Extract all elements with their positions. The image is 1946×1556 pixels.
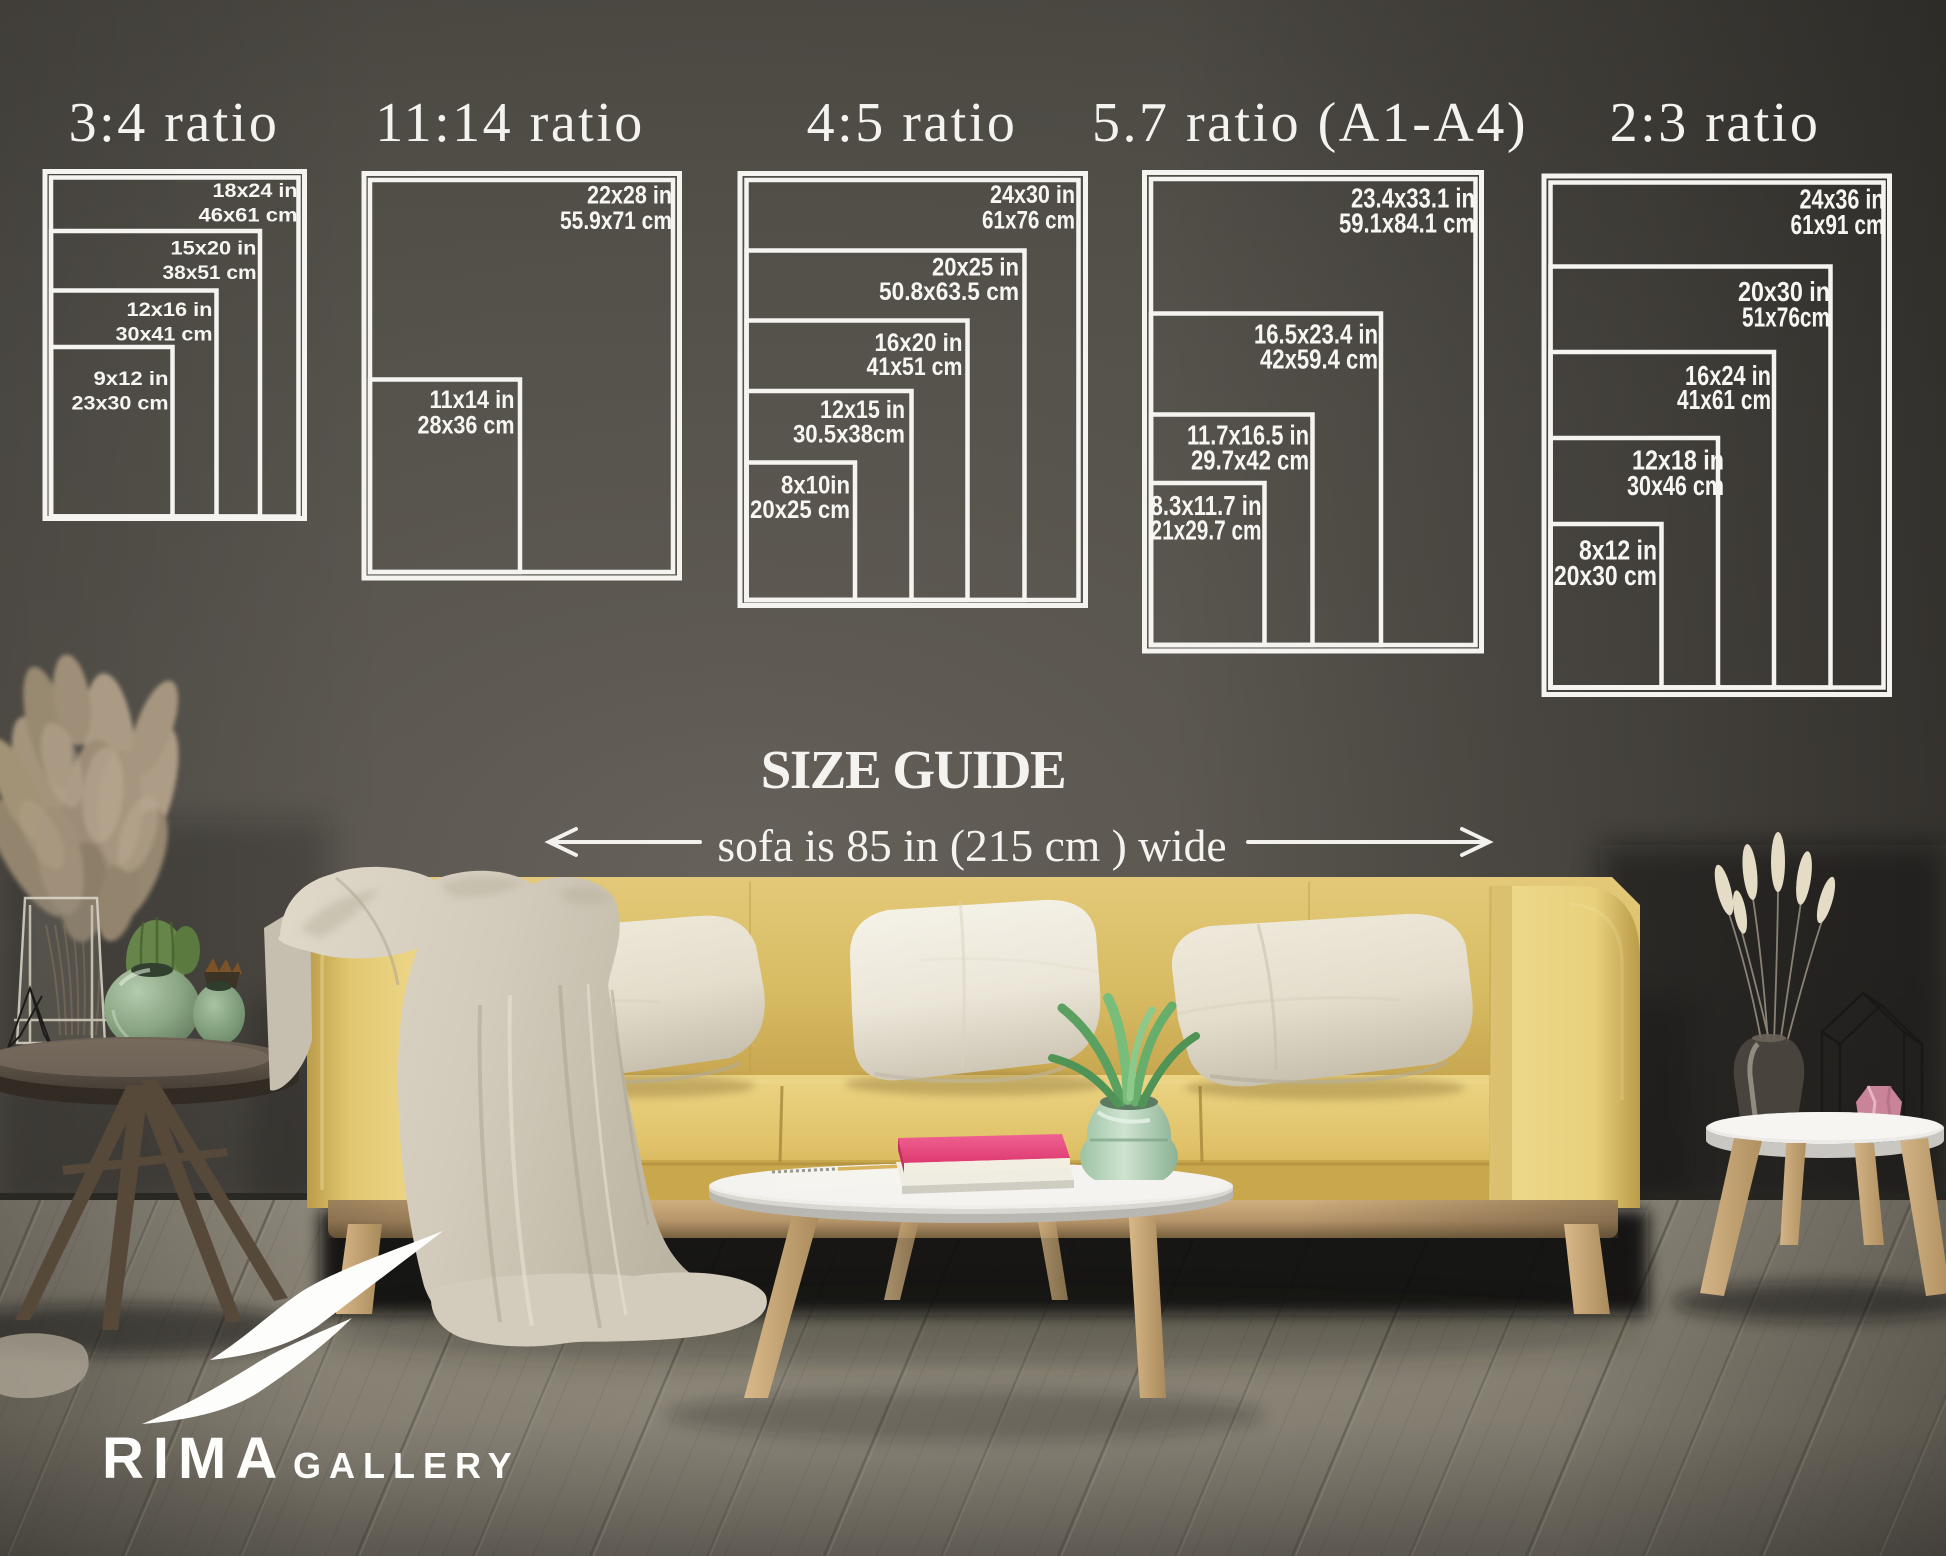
svg-text:5.7 ratio (A1-A4): 5.7 ratio (A1-A4) [1092,92,1528,154]
svg-text:SIZE GUIDE: SIZE GUIDE [761,739,1065,800]
svg-text:11x14 in28x36 cm: 11x14 in28x36 cm [418,386,515,440]
svg-text:24x30 in61x76 cm: 24x30 in61x76 cm [982,181,1075,235]
svg-text:24x36 in61x91 cm: 24x36 in61x91 cm [1791,184,1885,241]
svg-text:16x20 in41x51 cm: 16x20 in41x51 cm [867,329,963,381]
svg-text:2:3 ratio: 2:3 ratio [1610,92,1821,154]
svg-text:GALLERY: GALLERY [293,1445,520,1486]
svg-text:sofa is 85 in (215 cm ) wide: sofa is 85 in (215 cm ) wide [717,820,1226,871]
svg-text:4:5 ratio: 4:5 ratio [807,92,1018,154]
svg-text:8.3x11.7 in21x29.7 cm: 8.3x11.7 in21x29.7 cm [1151,490,1262,546]
svg-text:20x30 in51x76cm: 20x30 in51x76cm [1738,276,1830,333]
svg-text:11.7x16.5 in29.7x42 cm: 11.7x16.5 in29.7x42 cm [1187,420,1309,476]
svg-text:11:14 ratio: 11:14 ratio [375,92,645,154]
svg-text:23.4x33.1 in59.1x84.1 cm: 23.4x33.1 in59.1x84.1 cm [1339,183,1475,239]
svg-text:16.5x23.4 in42x59.4 cm: 16.5x23.4 in42x59.4 cm [1254,319,1378,375]
svg-text:16x24 in41x61 cm: 16x24 in41x61 cm [1677,360,1771,415]
svg-text:3:4 ratio: 3:4 ratio [69,92,280,154]
svg-text:12x18 in30x46 cm: 12x18 in30x46 cm [1627,445,1724,502]
svg-text:RIMA: RIMA [102,1426,286,1491]
